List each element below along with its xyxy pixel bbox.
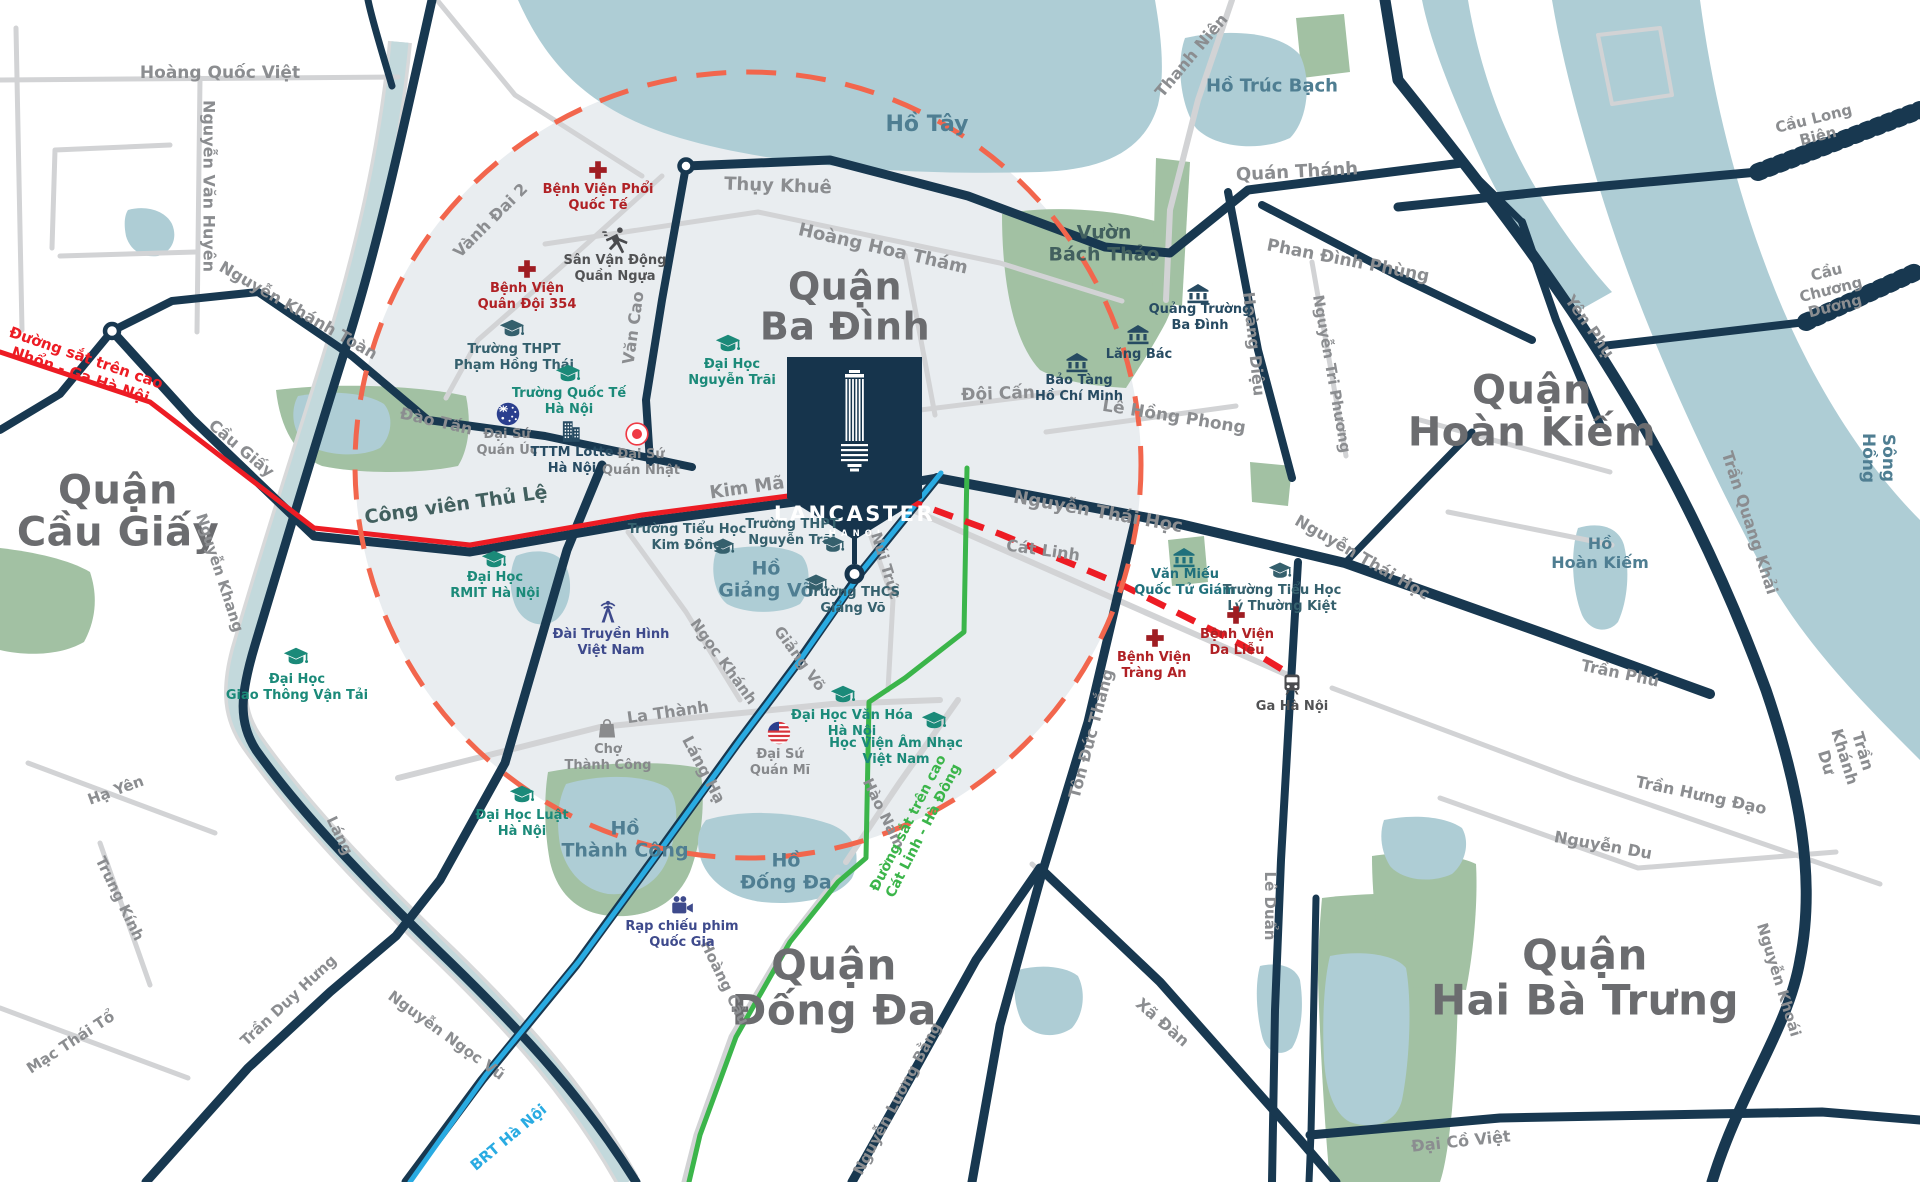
district-label: Quận Hai Bà Trưng (1431, 933, 1739, 1022)
road-label: Vành Đai 2 (450, 180, 532, 262)
road-label: Văn Cao (620, 290, 649, 366)
van-mieu-quoc-tu-giam-label: Văn Miếu Quốc Tử Giám (1134, 567, 1236, 600)
rap-chieu-phim-quoc-gia-icon (669, 893, 695, 919)
road-label: Hoàng Quốc Việt (140, 63, 300, 83)
road-label: Trần Phú (1579, 657, 1661, 692)
road-label: Nguyễn Tri Phương (1308, 294, 1353, 455)
road-label: Đội Cấn (961, 383, 1035, 406)
dai-hoc-nguyen-trai-label: Đại Học Nguyễn Trãi (688, 357, 776, 390)
dai-truyen-hinh-viet-nam-icon (594, 598, 622, 626)
benh-vien-da-lieu-label: Bệnh Viện Da Liễu (1200, 627, 1274, 660)
road-label: Hạ Yên (86, 773, 147, 810)
tttm-lotte-ha-noi-icon (558, 418, 584, 444)
road-label: Láng Hạ (677, 733, 728, 807)
road-label: Kim Mã (708, 472, 785, 503)
road-label: Lê Duẩn (1260, 872, 1278, 941)
bao-tang-ho-chi-minh-icon (1065, 350, 1089, 374)
dai-hoc-van-hoa-ha-noi-icon (830, 683, 856, 709)
benh-vien-phoi-quoc-te-icon (588, 160, 608, 180)
dai-hoc-luat-ha-noi-label: Đại Học Luật Hà Nội (475, 808, 568, 841)
road-label: Trung Kính (91, 854, 147, 944)
road-label: Xã Đàn (1132, 995, 1193, 1051)
road-label: La Thành (626, 698, 710, 728)
road-label: Tôn Đức Thắng (1066, 667, 1119, 801)
road-label: Cầu Long Biên (1761, 98, 1870, 157)
road-label: Nguyễn Thái Học (1012, 487, 1185, 538)
road-label: Mạc Thái Tổ (24, 1008, 118, 1078)
benh-vien-quan-doi-354-icon (517, 259, 537, 279)
lang-bac-label: Lăng Bác (1106, 347, 1173, 363)
lang-bac-icon (1126, 322, 1150, 346)
truong-tieu-hoc-ly-thuong-kiet-icon (1268, 560, 1292, 584)
road-label: Trần Hưng Đạo (1634, 773, 1768, 819)
road-label: Cát Linh (1005, 536, 1081, 565)
district-label: Quận Đống Đa (731, 943, 937, 1032)
road-label: Nguyễn Văn Huyên (199, 100, 218, 272)
map: LANCASTER HANOI Quận Cầu GiấyQuận Ba Đìn… (0, 0, 1920, 1182)
ga-ha-noi-label: Ga Hà Nội (1256, 699, 1328, 715)
water-label: Hồ Đống Đa (740, 850, 831, 895)
road-label: Cầu Chương Dương (1781, 253, 1880, 326)
water-label: Hồ Giảng Võ (718, 558, 813, 603)
truong-quoc-te-ha-noi-label: Trường Quốc Tế Hà Nội (512, 386, 626, 419)
road-label: Đại Cồ Việt (1410, 1127, 1511, 1156)
road-label: Nguyễn Lương Bằng (850, 1020, 945, 1178)
dai-hoc-rmit-ha-noi-label: Đại Học RMIT Hà Nội (450, 570, 540, 603)
truong-quoc-te-ha-noi-icon (555, 362, 581, 388)
water-label: Hồ Hoàn Kiếm (1551, 535, 1649, 573)
water-label: Hồ Trúc Bạch (1206, 75, 1338, 96)
road-label: Thụy Khuê (724, 174, 832, 199)
dai-hoc-luat-ha-noi-icon (509, 783, 535, 809)
road-label: Nguyễn Khánh Toàn (216, 258, 381, 364)
cho-thanh-cong-label: Chợ Thành Công (565, 742, 652, 775)
bao-tang-ho-chi-minh-label: Bảo Tàng Hồ Chí Minh (1035, 373, 1123, 406)
road-label: Ngọc Khánh (686, 616, 760, 709)
road-label: Phan Đình Phùng (1265, 235, 1431, 286)
road-label: Quán Thánh (1235, 158, 1358, 186)
water-label: Hồ Tây (886, 112, 969, 138)
road-label: Giảng Võ (770, 623, 829, 694)
benh-vien-trang-an-icon (1145, 628, 1165, 648)
truong-thpt-pham-hong-thai-icon (499, 317, 525, 343)
park-label: Công viên Thủ Lệ (363, 481, 549, 529)
district-label: Quận Cầu Giấy (17, 470, 219, 555)
benh-vien-trang-an-label: Bệnh Viện Tràng An (1117, 650, 1191, 683)
road-label: Yên Phụ (1560, 292, 1617, 362)
district-label: Quận Ba Đình (760, 267, 930, 348)
dai-su-quan-nhat-icon (625, 422, 650, 447)
rail-label: BRT Hà Nội (467, 1101, 550, 1175)
dai-su-quan-nhat-label: Đại Sứ Quán Nhật (602, 447, 680, 480)
dai-su-quan-uc-icon (496, 402, 521, 427)
rap-chieu-phim-quoc-gia-label: Rạp chiếu phim Quốc Gia (625, 919, 738, 952)
water-label: Sông Hồng (1858, 433, 1898, 483)
quang-truong-ba-dinh-label: Quảng Trường Ba Đình (1149, 302, 1252, 335)
dai-su-quan-mi-icon (767, 721, 792, 746)
san-van-dong-quan-ngua-icon (601, 226, 629, 254)
hoc-vien-am-nhac-viet-nam-icon (921, 709, 947, 735)
road-label: Đào Tấn (398, 404, 474, 439)
san-van-dong-quan-ngua-label: Sân Vận Động Quần Ngựa (564, 253, 667, 286)
road-label: Láng (322, 814, 356, 859)
benh-vien-da-lieu-icon (1226, 605, 1246, 625)
road-label: Trần Khánh Dư (1806, 712, 1882, 801)
truong-thcs-giang-vo-label: Trường THCS Giảng Võ (806, 585, 900, 618)
rail-label: Đường sắt trên cao Nhổn - Ga Hà Nội (1, 324, 165, 410)
labels-overlay: Quận Cầu GiấyQuận Ba ĐìnhQuận Hoàn KiếmQ… (0, 0, 1920, 1182)
van-mieu-quoc-tu-giam-icon (1172, 545, 1196, 569)
ga-ha-noi-icon (1280, 672, 1304, 696)
dai-hoc-giao-thong-van-tai-icon (283, 645, 309, 671)
road-label: Trần Quang Khải (1717, 449, 1781, 597)
truong-thpt-nguyen-trai-label: Trường THPT Nguyễn Trãi (745, 517, 838, 550)
cho-thanh-cong-icon (595, 716, 619, 740)
road-label: Nguyễn Khoái (1752, 921, 1803, 1039)
benh-vien-quan-doi-354-label: Bệnh Viện Quân Đội 354 (478, 281, 577, 314)
hoc-vien-am-nhac-viet-nam-label: Học Viện Âm Nhạc Việt Nam (829, 736, 963, 769)
dai-hoc-nguyen-trai-icon (715, 332, 741, 358)
road-label: Nguyễn Ngọc Vũ (384, 988, 508, 1084)
district-label: Quận Hoàn Kiếm (1408, 370, 1656, 455)
dai-truyen-hinh-viet-nam-label: Đài Truyền Hình Việt Nam (553, 627, 670, 660)
road-label: Trần Duy Hưng (237, 952, 340, 1050)
water-label: Hồ Thành Công (561, 818, 688, 863)
dai-su-quan-uc-label: Đại Sứ Quán Úc (476, 427, 537, 460)
dai-hoc-giao-thong-van-tai-label: Đại Học Giao Thông Vận Tải (226, 672, 368, 705)
truong-tieu-hoc-kim-dong-label: Trường Tiểu Học Kim Đồng (628, 522, 747, 555)
benh-vien-phoi-quoc-te-label: Bệnh Viện Phổi Quốc Tế (543, 182, 654, 215)
road-label: Nguyễn Du (1553, 828, 1654, 864)
park-label: Vườn Bách Thảo (1048, 222, 1159, 267)
dai-su-quan-mi-label: Đại Sứ Quán Mĩ (750, 747, 810, 780)
